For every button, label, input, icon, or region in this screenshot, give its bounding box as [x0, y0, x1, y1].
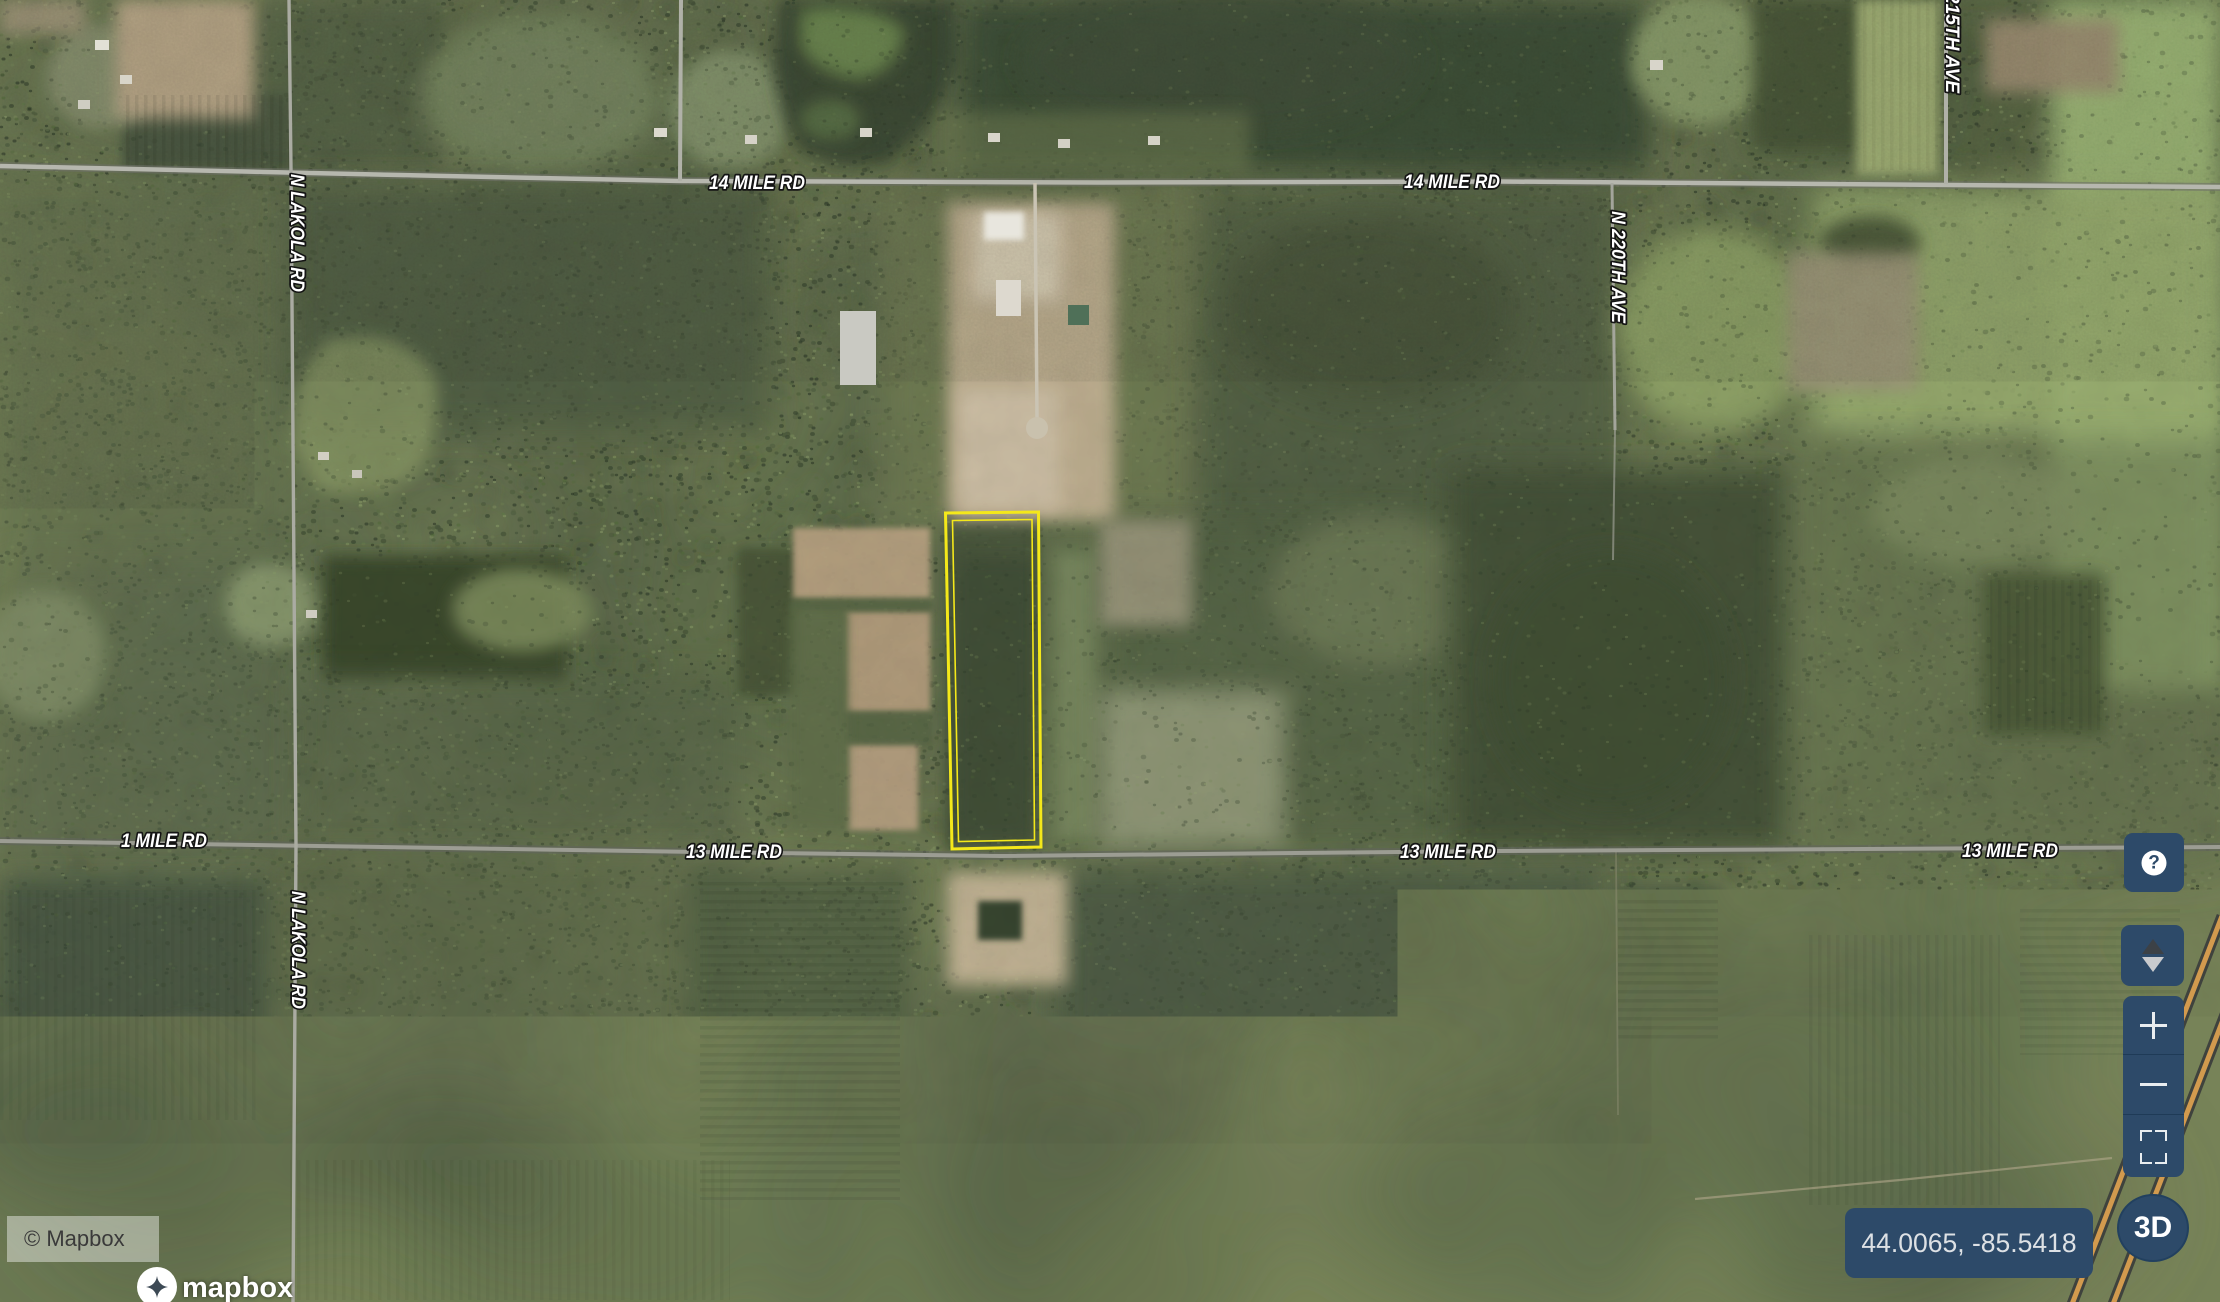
svg-text:14 MILE RD: 14 MILE RD: [1404, 171, 1500, 193]
svg-text:13 MILE RD: 13 MILE RD: [1400, 841, 1496, 863]
svg-text:1 MILE RD: 1 MILE RD: [121, 830, 207, 852]
svg-text:13 MILE RD: 13 MILE RD: [686, 841, 782, 863]
svg-text:N 220TH AVE: N 220TH AVE: [1607, 211, 1629, 324]
svg-text:13 MILE RD: 13 MILE RD: [1962, 840, 2058, 862]
svg-text:14 MILE RD: 14 MILE RD: [709, 172, 805, 194]
svg-text:mapbox: mapbox: [182, 1272, 293, 1302]
svg-text:N LAKOLA RD: N LAKOLA RD: [287, 891, 309, 1009]
svg-text:215TH AVE: 215TH AVE: [1941, 0, 1963, 94]
svg-text:N LAKOLA RD: N LAKOLA RD: [286, 174, 308, 292]
